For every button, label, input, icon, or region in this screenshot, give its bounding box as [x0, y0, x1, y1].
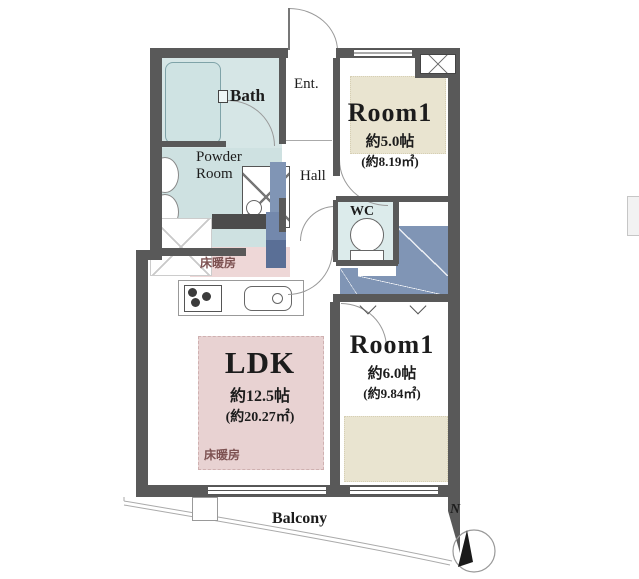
floor-plan: Bath Powder Room Ent. Hall WC Room1 約5.0…: [0, 0, 639, 579]
ldk-area: (約20.27㎡): [198, 406, 322, 426]
powder-room-label-line1: Powder: [196, 149, 242, 166]
wall-wc-bottom: [336, 260, 398, 266]
window-room1-north: [354, 49, 412, 57]
floor-heating-label-ldk: 床暖房: [204, 446, 240, 463]
room1-south-label-group: Room1 約6.0帖 (約9.84㎡): [336, 330, 448, 402]
bath-label-group: Bath: [218, 86, 265, 106]
wall-left-lower: [136, 255, 148, 497]
closet: [358, 276, 448, 296]
closet: [340, 268, 358, 296]
room1-south-area: (約9.84㎡): [336, 383, 448, 402]
sink-faucet: [272, 293, 283, 304]
wall-wc-left: [333, 200, 338, 262]
wall-powder-hall: [279, 198, 286, 232]
window-room1-south: [350, 486, 438, 495]
bath-label: Bath: [230, 86, 265, 106]
stove-burner: [188, 288, 197, 297]
room1-north-label-group: Room1 約5.0帖 (約8.19㎡): [334, 98, 446, 170]
room1-north-title: Room1: [334, 98, 446, 128]
powder-room-label-line2: Room: [196, 166, 242, 183]
closet: [396, 226, 448, 276]
wall-bath-powder: [162, 141, 226, 147]
powder-room-label: Powder Room: [196, 149, 242, 184]
floor-heating-label-kitchen: 床暖房: [200, 254, 236, 271]
toilet-bowl: [350, 218, 384, 252]
ldk-label-group: LDK 約12.5帖 (約20.27㎡): [198, 345, 322, 426]
hall-door-arc: [288, 250, 333, 295]
room1-north-size: 約5.0帖: [334, 130, 446, 151]
wall-top-left: [150, 48, 288, 58]
pipe-space-box: [420, 54, 456, 74]
room1-north-area: (約8.19㎡): [334, 151, 446, 170]
right-edge-artifact: [627, 196, 639, 236]
compass-north-label: N: [450, 502, 460, 518]
ldk-size: 約12.5帖: [198, 382, 322, 406]
wall-left-upper: [150, 48, 162, 260]
room1-south-title: Room1: [336, 330, 448, 360]
kitchen-sink: [244, 286, 292, 311]
ldk-title: LDK: [198, 345, 322, 381]
wall-wc-right: [393, 202, 399, 264]
bath-unit-icon: [218, 90, 228, 103]
wall-bath-entrance: [279, 58, 286, 144]
wall-right: [448, 55, 460, 497]
bathtub: [165, 62, 221, 144]
hall-label: Hall: [300, 168, 326, 185]
room1-south-size: 約6.0帖: [336, 362, 448, 383]
wall-closet-bottom: [333, 294, 448, 302]
stove: [184, 285, 222, 312]
balcony-equipment-box: [192, 497, 218, 521]
wc-door-arc: [300, 206, 335, 241]
balcony-outline: [0, 485, 639, 579]
room1-south-tatami-area: [344, 416, 448, 482]
wc-label: WC: [350, 204, 374, 220]
stove-burner: [191, 298, 200, 307]
storage-block-dark: [266, 240, 286, 268]
entrance-door-arc: [289, 8, 338, 51]
entrance-door-leaf: [288, 8, 290, 50]
entrance-step-line: [284, 140, 332, 141]
window-ldk: [208, 486, 326, 495]
stove-burner: [202, 292, 211, 301]
balcony-label: Balcony: [272, 510, 327, 528]
entrance-label: Ent.: [294, 76, 319, 93]
wall-room1n-bottom: [336, 196, 448, 202]
kitchen-cabinet: [212, 214, 268, 229]
